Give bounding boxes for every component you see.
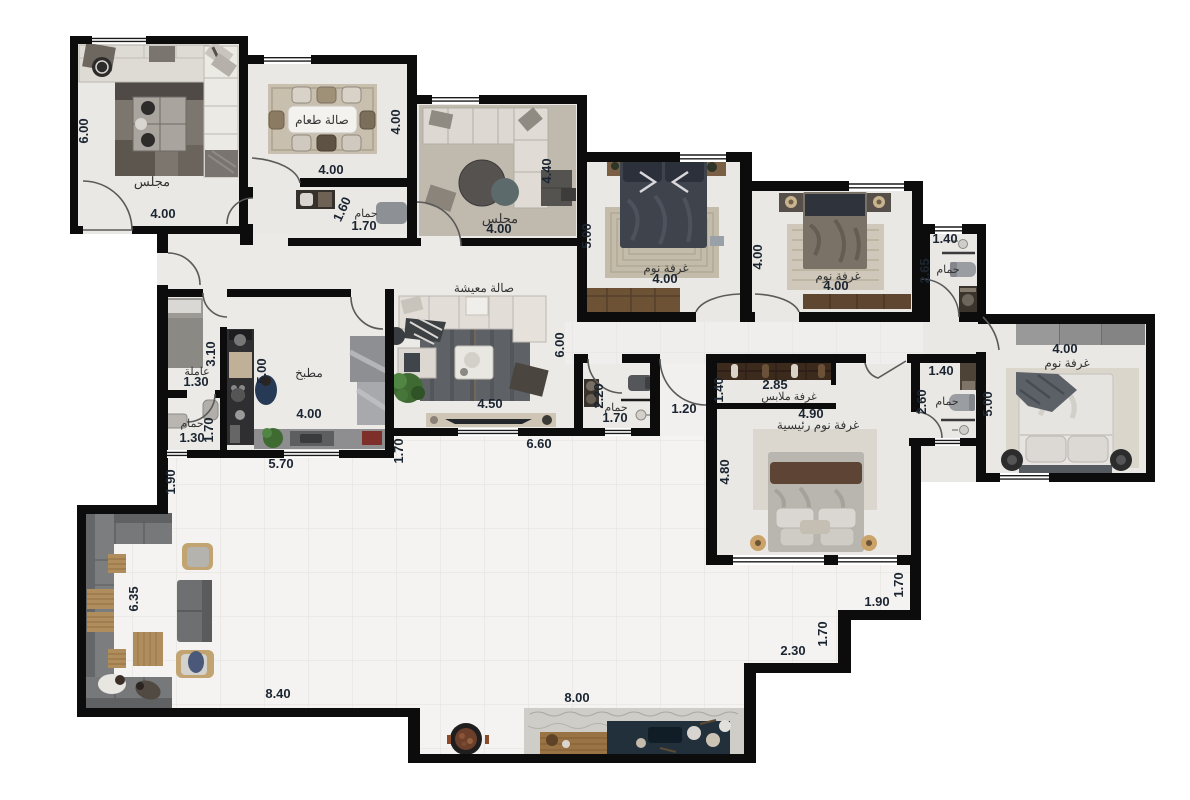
- svg-text:حمام: حمام: [180, 418, 203, 430]
- svg-text:مجلس: مجلس: [482, 211, 518, 227]
- svg-text:4.80: 4.80: [717, 459, 732, 484]
- svg-text:حمام: حمام: [604, 402, 627, 414]
- svg-text:2.85: 2.85: [762, 377, 787, 392]
- svg-text:عاملة: عاملة: [184, 366, 209, 378]
- svg-text:5.00: 5.00: [980, 391, 995, 416]
- svg-text:1.90: 1.90: [163, 469, 178, 494]
- svg-text:صالة معيشة: صالة معيشة: [454, 281, 514, 295]
- svg-text:4.00: 4.00: [318, 162, 343, 177]
- svg-text:1.40: 1.40: [711, 377, 726, 402]
- svg-text:6.60: 6.60: [526, 436, 551, 451]
- svg-text:مجلس: مجلس: [134, 174, 170, 190]
- svg-text:5.70: 5.70: [268, 456, 293, 471]
- svg-text:6.00: 6.00: [76, 118, 91, 143]
- svg-text:غرفة نوم: غرفة نوم: [1044, 356, 1089, 370]
- svg-text:1.40: 1.40: [928, 363, 953, 378]
- svg-text:1.70: 1.70: [891, 572, 906, 597]
- svg-text:حمام: حمام: [354, 208, 377, 220]
- svg-text:1.90: 1.90: [864, 594, 889, 609]
- svg-text:4.00: 4.00: [388, 109, 403, 134]
- svg-text:1.70: 1.70: [815, 621, 830, 646]
- svg-text:غرفة نوم رئيسية: غرفة نوم رئيسية: [777, 418, 859, 432]
- svg-text:غرفة نوم: غرفة نوم: [815, 269, 860, 283]
- svg-text:5.00: 5.00: [579, 223, 594, 248]
- svg-text:6.35: 6.35: [126, 586, 141, 611]
- svg-text:5.00: 5.00: [254, 358, 269, 383]
- svg-text:صالة طعام: صالة طعام: [295, 113, 349, 127]
- svg-text:غرفة ملابس: غرفة ملابس: [761, 391, 817, 403]
- svg-text:1.70: 1.70: [351, 218, 376, 233]
- svg-text:4.50: 4.50: [477, 396, 502, 411]
- svg-text:3.10: 3.10: [203, 341, 218, 366]
- svg-text:حمام: حمام: [935, 396, 958, 408]
- svg-text:8.40: 8.40: [265, 686, 290, 701]
- svg-text:1.70: 1.70: [391, 438, 406, 463]
- svg-text:1.40: 1.40: [932, 231, 957, 246]
- svg-text:غرفة نوم: غرفة نوم: [643, 261, 688, 275]
- svg-text:8.00: 8.00: [564, 690, 589, 705]
- svg-text:حمام: حمام: [936, 264, 959, 276]
- svg-text:4.00: 4.00: [1052, 341, 1077, 356]
- svg-text:4.00: 4.00: [750, 244, 765, 269]
- svg-text:4.40: 4.40: [539, 158, 554, 183]
- svg-text:1.20: 1.20: [671, 401, 696, 416]
- svg-text:مطبخ: مطبخ: [295, 366, 323, 380]
- svg-text:2.65: 2.65: [917, 258, 932, 283]
- svg-text:4.00: 4.00: [296, 406, 321, 421]
- svg-text:2.30: 2.30: [780, 643, 805, 658]
- svg-text:4.00: 4.00: [150, 206, 175, 221]
- svg-text:2.60: 2.60: [914, 389, 929, 414]
- svg-text:6.00: 6.00: [552, 332, 567, 357]
